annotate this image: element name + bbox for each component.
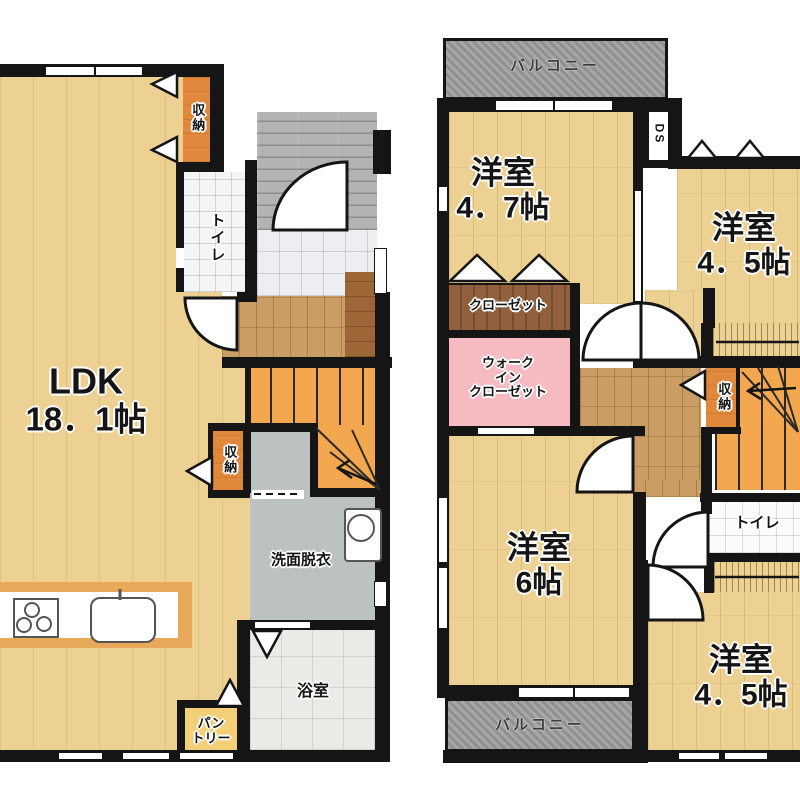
folding-door-icon bbox=[253, 631, 281, 657]
label-ldk: LDK 18．1帖 bbox=[25, 361, 146, 438]
label-pantry: パン トリー bbox=[191, 716, 230, 745]
label-balcony-top: バルコニー bbox=[510, 59, 600, 76]
folding-door-icon bbox=[152, 72, 177, 97]
floorplan-canvas: LDK 18．1帖 収納 トイレ 収納 洗面脱衣 浴室 パン トリー bbox=[0, 0, 800, 800]
label-walk-in-closet: ウォーク イン クローゼット bbox=[469, 356, 547, 400]
label-storage-2f: 収納 bbox=[716, 382, 731, 412]
stove-burners bbox=[17, 603, 51, 632]
folding-door-icon bbox=[681, 371, 705, 399]
entrance-door-swing bbox=[273, 162, 347, 230]
folding-door-icon bbox=[512, 255, 567, 281]
folding-door-icon bbox=[216, 680, 244, 706]
room6-door-swing bbox=[577, 436, 633, 492]
label-washroom: 洗面脱衣 bbox=[271, 553, 331, 570]
hall-door-swing bbox=[185, 298, 237, 350]
label-room-6: 洋室 6帖 bbox=[507, 530, 571, 599]
folding-door-icon bbox=[152, 137, 177, 162]
label-storage-top: 収納 bbox=[190, 103, 205, 133]
label-ds: DS bbox=[652, 124, 665, 145]
folding-door-icon bbox=[450, 255, 505, 281]
label-room-47: 洋室 4．7帖 bbox=[456, 155, 549, 224]
label-balcony-bottom: バルコニー bbox=[495, 718, 585, 735]
toilet-2f-door-swing bbox=[653, 512, 708, 567]
stairs-2f-fan bbox=[742, 366, 798, 432]
label-toilet-2f: トイレ bbox=[734, 516, 779, 533]
folding-door-icon bbox=[187, 457, 212, 486]
label-storage-mid: 収納 bbox=[222, 445, 237, 475]
label-closet: クローゼット bbox=[469, 299, 547, 314]
casement-window-icon bbox=[688, 141, 764, 158]
basin-icon bbox=[348, 515, 374, 541]
label-room-45-bottom: 洋室 4．5帖 bbox=[694, 642, 787, 711]
label-bathroom: 浴室 bbox=[297, 683, 329, 701]
label-toilet-1f: トイレ bbox=[208, 213, 225, 264]
room45-bottom-door-swing bbox=[648, 565, 703, 620]
label-room-45-top: 洋室 4．5帖 bbox=[697, 210, 790, 279]
